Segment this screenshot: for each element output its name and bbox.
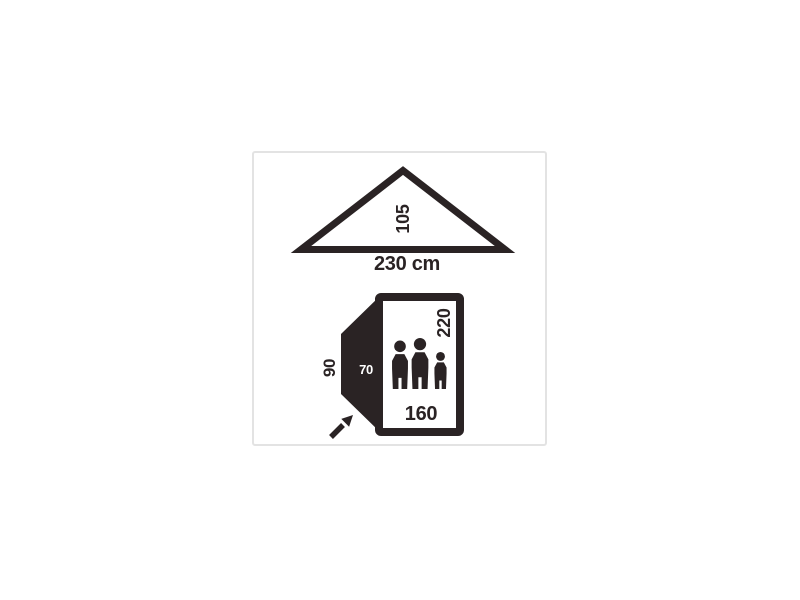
vestibule-depth-label: 70 — [359, 362, 373, 377]
vestibule-width-label: 90 — [320, 359, 339, 377]
entrance-arrow-icon — [331, 415, 353, 437]
page-background: 105 230 cm 220 160 70 90 — [0, 0, 800, 600]
tent-height-label: 105 — [393, 204, 413, 233]
tent-width-label: 230 cm — [374, 253, 440, 275]
tent-dimensions-card: 105 230 cm 220 160 70 90 — [252, 151, 547, 446]
bedroom-width-label: 160 — [405, 403, 438, 425]
tent-dimensions-diagram: 105 230 cm 220 160 70 90 — [254, 153, 545, 444]
bedroom-length-label: 220 — [434, 308, 454, 337]
tent-floor-plan: 220 160 70 90 — [320, 294, 460, 437]
tent-front-profile: 105 230 cm — [301, 171, 505, 276]
